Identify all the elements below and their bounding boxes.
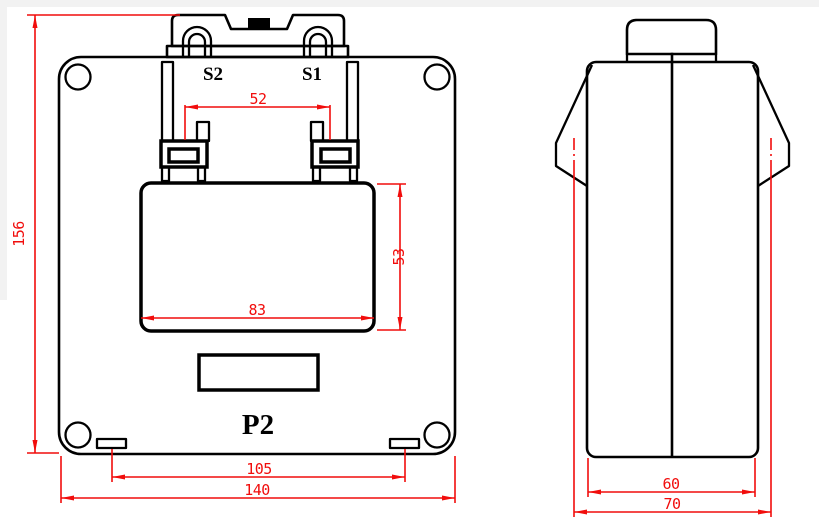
corner-hole-bottom-left xyxy=(66,423,91,448)
dim-value-70: 70 xyxy=(663,495,681,513)
dim-value-53: 53 xyxy=(390,248,408,265)
cover-latch-tab xyxy=(248,18,270,29)
dimension-overall-depth: 70 xyxy=(574,495,771,513)
dim-value-83: 83 xyxy=(248,301,265,319)
corner-hole-top-right xyxy=(425,65,450,90)
corner-hole-top-left xyxy=(66,65,91,90)
terminal-s1-inner-bar xyxy=(311,122,323,141)
dimension-body-depth: 60 xyxy=(588,458,755,497)
dimension-terminal-pitch: 52 xyxy=(185,90,330,140)
terminal-s2-outer-bar xyxy=(162,62,173,141)
terminal-s2-leg-right xyxy=(198,167,205,181)
terminal-s1-leg-right xyxy=(350,167,357,181)
terminal-label-s1: S1 xyxy=(302,64,322,85)
foot-slot-right xyxy=(390,439,419,448)
dim-value-105: 105 xyxy=(246,460,272,478)
terminal-s1-outer-bar xyxy=(347,62,358,141)
terminal-s2-leg-left xyxy=(162,167,169,181)
front-view: S2 S1 P2 xyxy=(59,15,455,454)
dim-value-156: 156 xyxy=(10,221,28,247)
dimension-overall-height: 156 xyxy=(10,15,180,453)
terminal-s1-clamp-hole xyxy=(321,149,350,162)
terminal-s1-leg-left xyxy=(313,167,320,181)
frame-edge-top xyxy=(0,0,819,7)
dimension-window-width: 83 xyxy=(141,301,374,319)
top-cap xyxy=(627,20,716,54)
ct-dimension-drawing: S2 S1 P2 156 52 53 xyxy=(0,0,819,523)
frame-edge-left xyxy=(0,0,7,300)
drawing-canvas: S2 S1 P2 156 52 53 xyxy=(0,0,819,523)
nameplate xyxy=(199,355,318,390)
side-view xyxy=(556,20,789,517)
dimension-window-height: 53 xyxy=(377,184,408,330)
seal-loop-right-outer xyxy=(304,27,332,56)
corner-hole-bottom-right xyxy=(425,423,450,448)
terminal-s2-clamp-hole xyxy=(169,149,198,162)
terminal-cover-base xyxy=(167,46,348,57)
foot-slot-left xyxy=(97,439,126,448)
polarity-label-p2: P2 xyxy=(242,409,274,441)
dim-value-60: 60 xyxy=(662,475,680,493)
seal-loop-left-outer xyxy=(183,27,211,56)
dim-value-52: 52 xyxy=(249,90,266,108)
terminal-s2-inner-bar xyxy=(197,122,209,141)
terminal-label-s2: S2 xyxy=(203,64,223,85)
dim-value-140: 140 xyxy=(244,481,270,499)
